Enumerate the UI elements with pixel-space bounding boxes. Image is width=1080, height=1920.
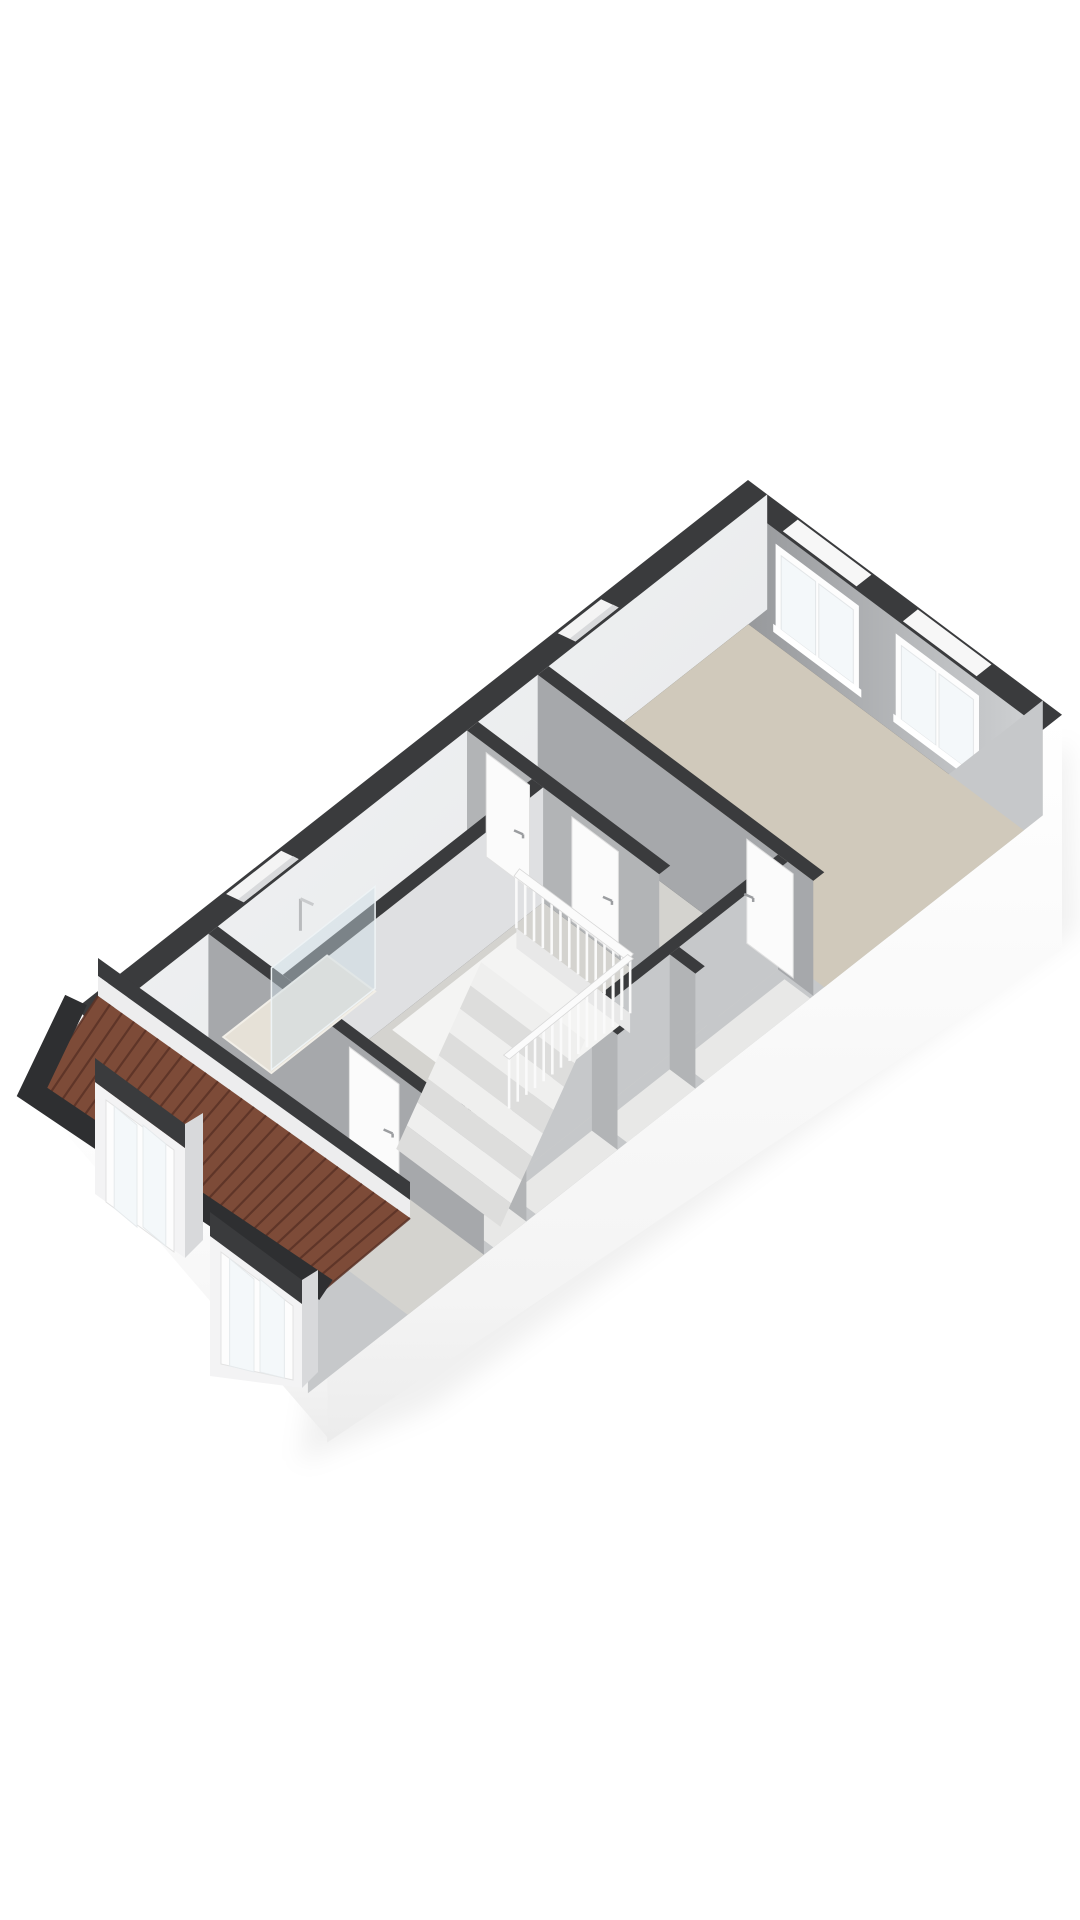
dormer-2-side-wall (302, 1270, 318, 1388)
render-root (32, 480, 1076, 1462)
floor-plan-3d-render (0, 0, 1080, 1920)
wall-closet-cross1-face (670, 954, 696, 1088)
dormer-1-side-wall (185, 1113, 203, 1258)
dormer-1-pane-1 (114, 1106, 137, 1227)
dormer-1-pane-2 (143, 1125, 166, 1246)
dormer-2-pane-1 (230, 1259, 254, 1373)
floor-plan-canvas (0, 0, 1080, 1920)
